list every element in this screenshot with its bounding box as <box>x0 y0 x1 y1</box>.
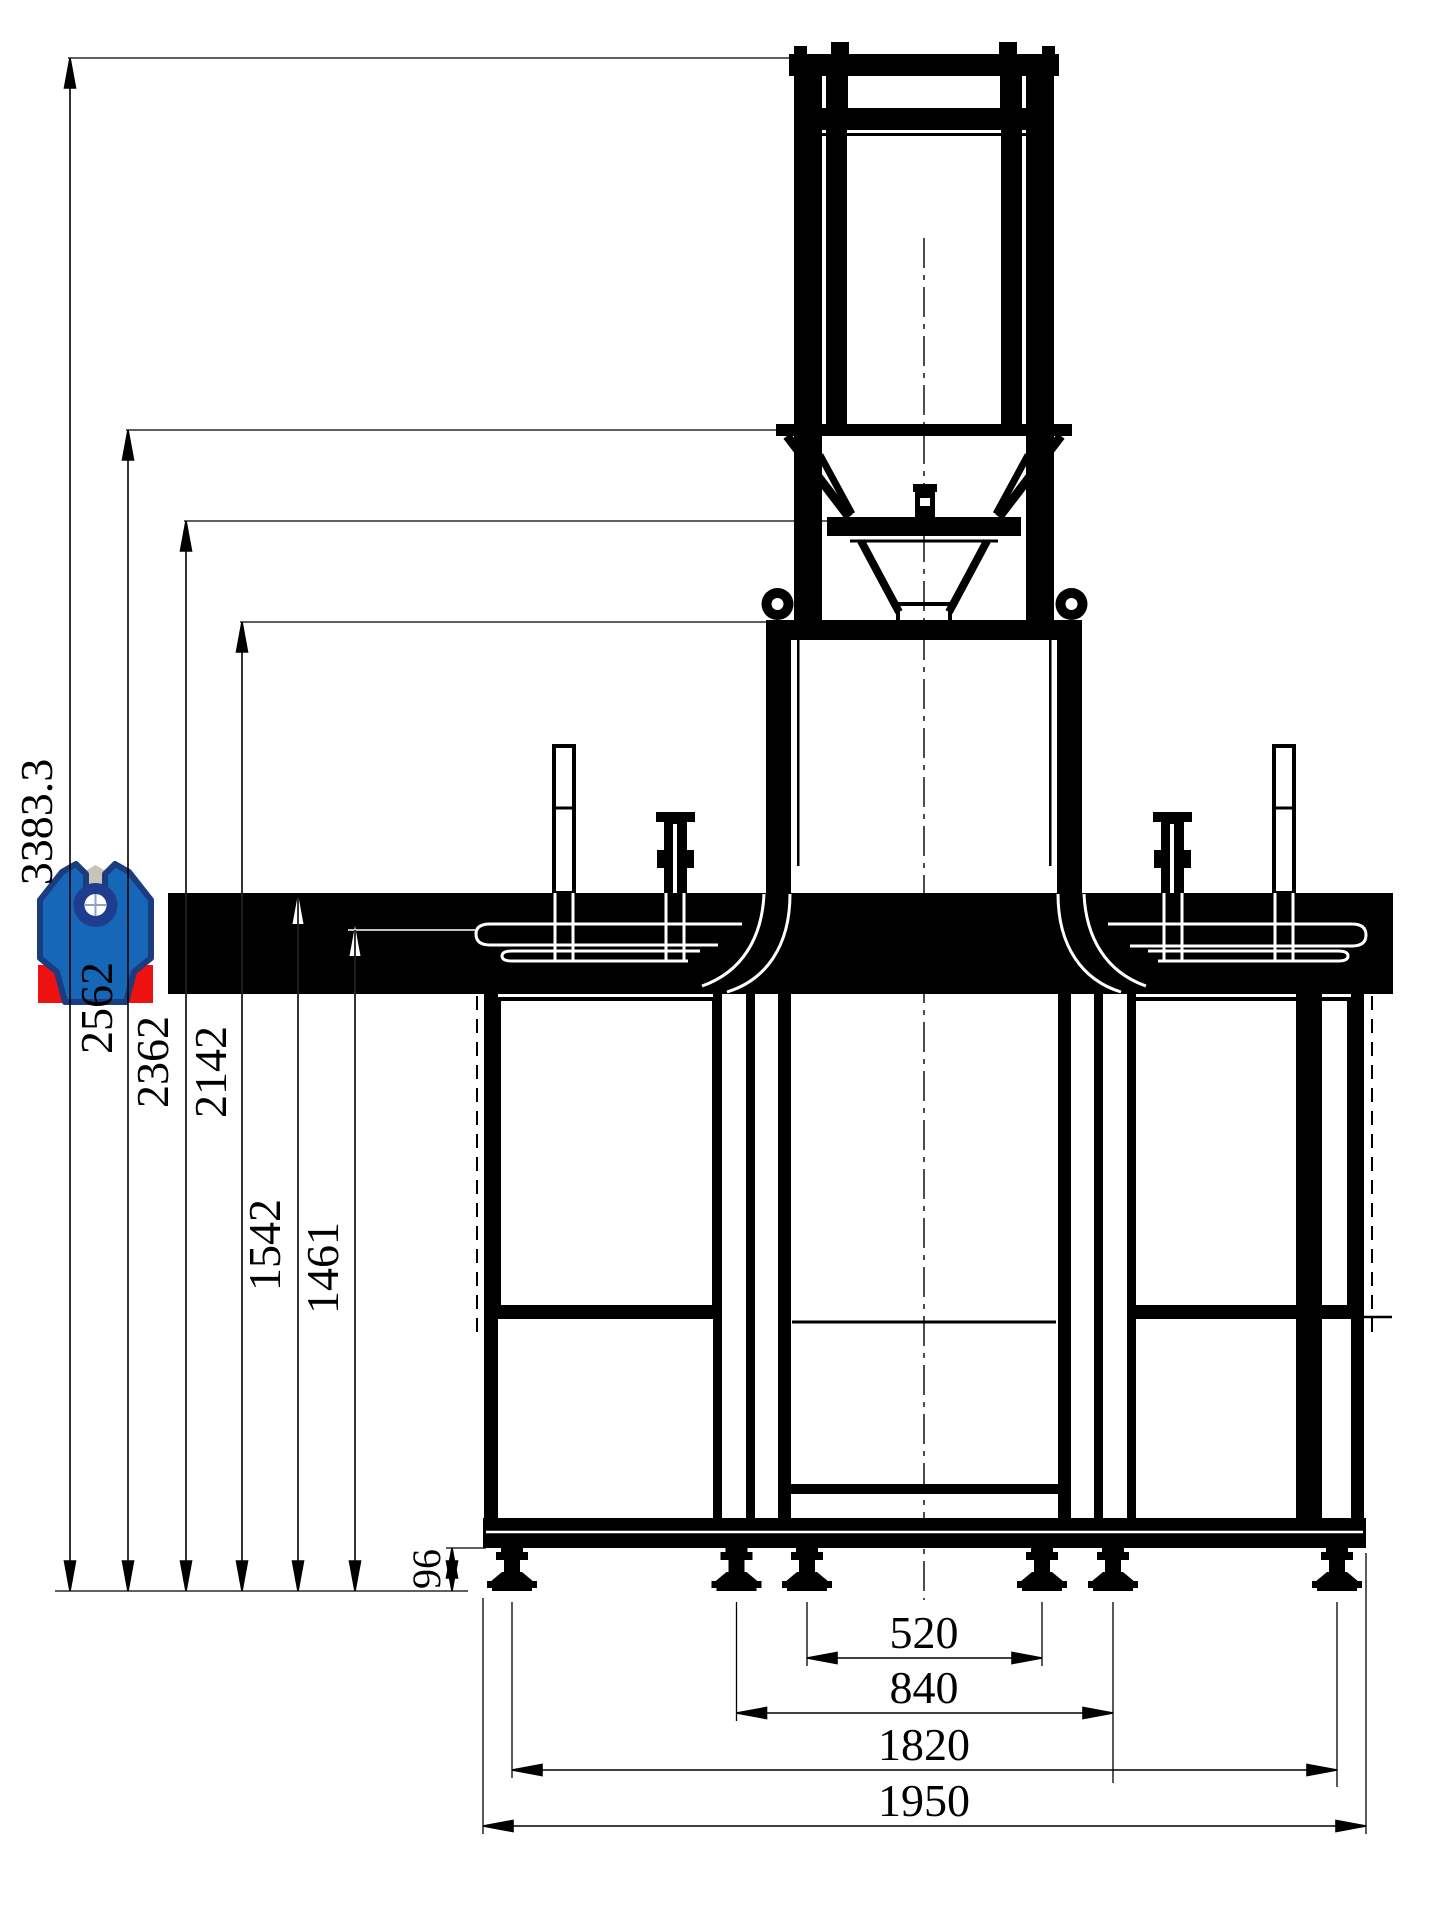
dim-label-belt-height: 1461 <box>297 1222 348 1314</box>
vibrator-motor <box>913 484 937 492</box>
engineering-drawing-page: 3383.3 2562 2362 2142 1542 1461 96 520 8… <box>0 0 1439 1920</box>
dim-label-total-height: 3383.3 <box>11 759 62 886</box>
conveyor-band <box>168 893 1393 994</box>
guide-post-right <box>1274 746 1294 893</box>
machine-elevation-drawing: 3383.3 2562 2362 2142 1542 1461 96 520 8… <box>0 0 1439 1920</box>
dim-label-box-top: 2142 <box>185 1026 236 1118</box>
dim-label-foot-clearance: 96 <box>404 1549 449 1589</box>
support-cabinet <box>477 994 1392 1520</box>
dim-label-outer-span: 1820 <box>878 1719 970 1770</box>
dim-label-inner-span: 520 <box>890 1607 959 1658</box>
base-frame <box>483 1518 1366 1548</box>
clamp-cylinder-left <box>656 812 695 893</box>
door-left <box>499 999 714 1317</box>
dim-label-hopper-rim: 2562 <box>71 962 122 1054</box>
guide-post-left <box>554 746 574 893</box>
machine-structure <box>168 42 1393 1600</box>
dim-label-plate-height: 2362 <box>127 1016 178 1108</box>
dim-label-mid-span: 840 <box>890 1662 959 1713</box>
dim-label-table-height: 1542 <box>239 1199 290 1291</box>
clamp-cylinder-right <box>1153 812 1192 893</box>
dim-label-frame-length: 1950 <box>878 1775 970 1826</box>
